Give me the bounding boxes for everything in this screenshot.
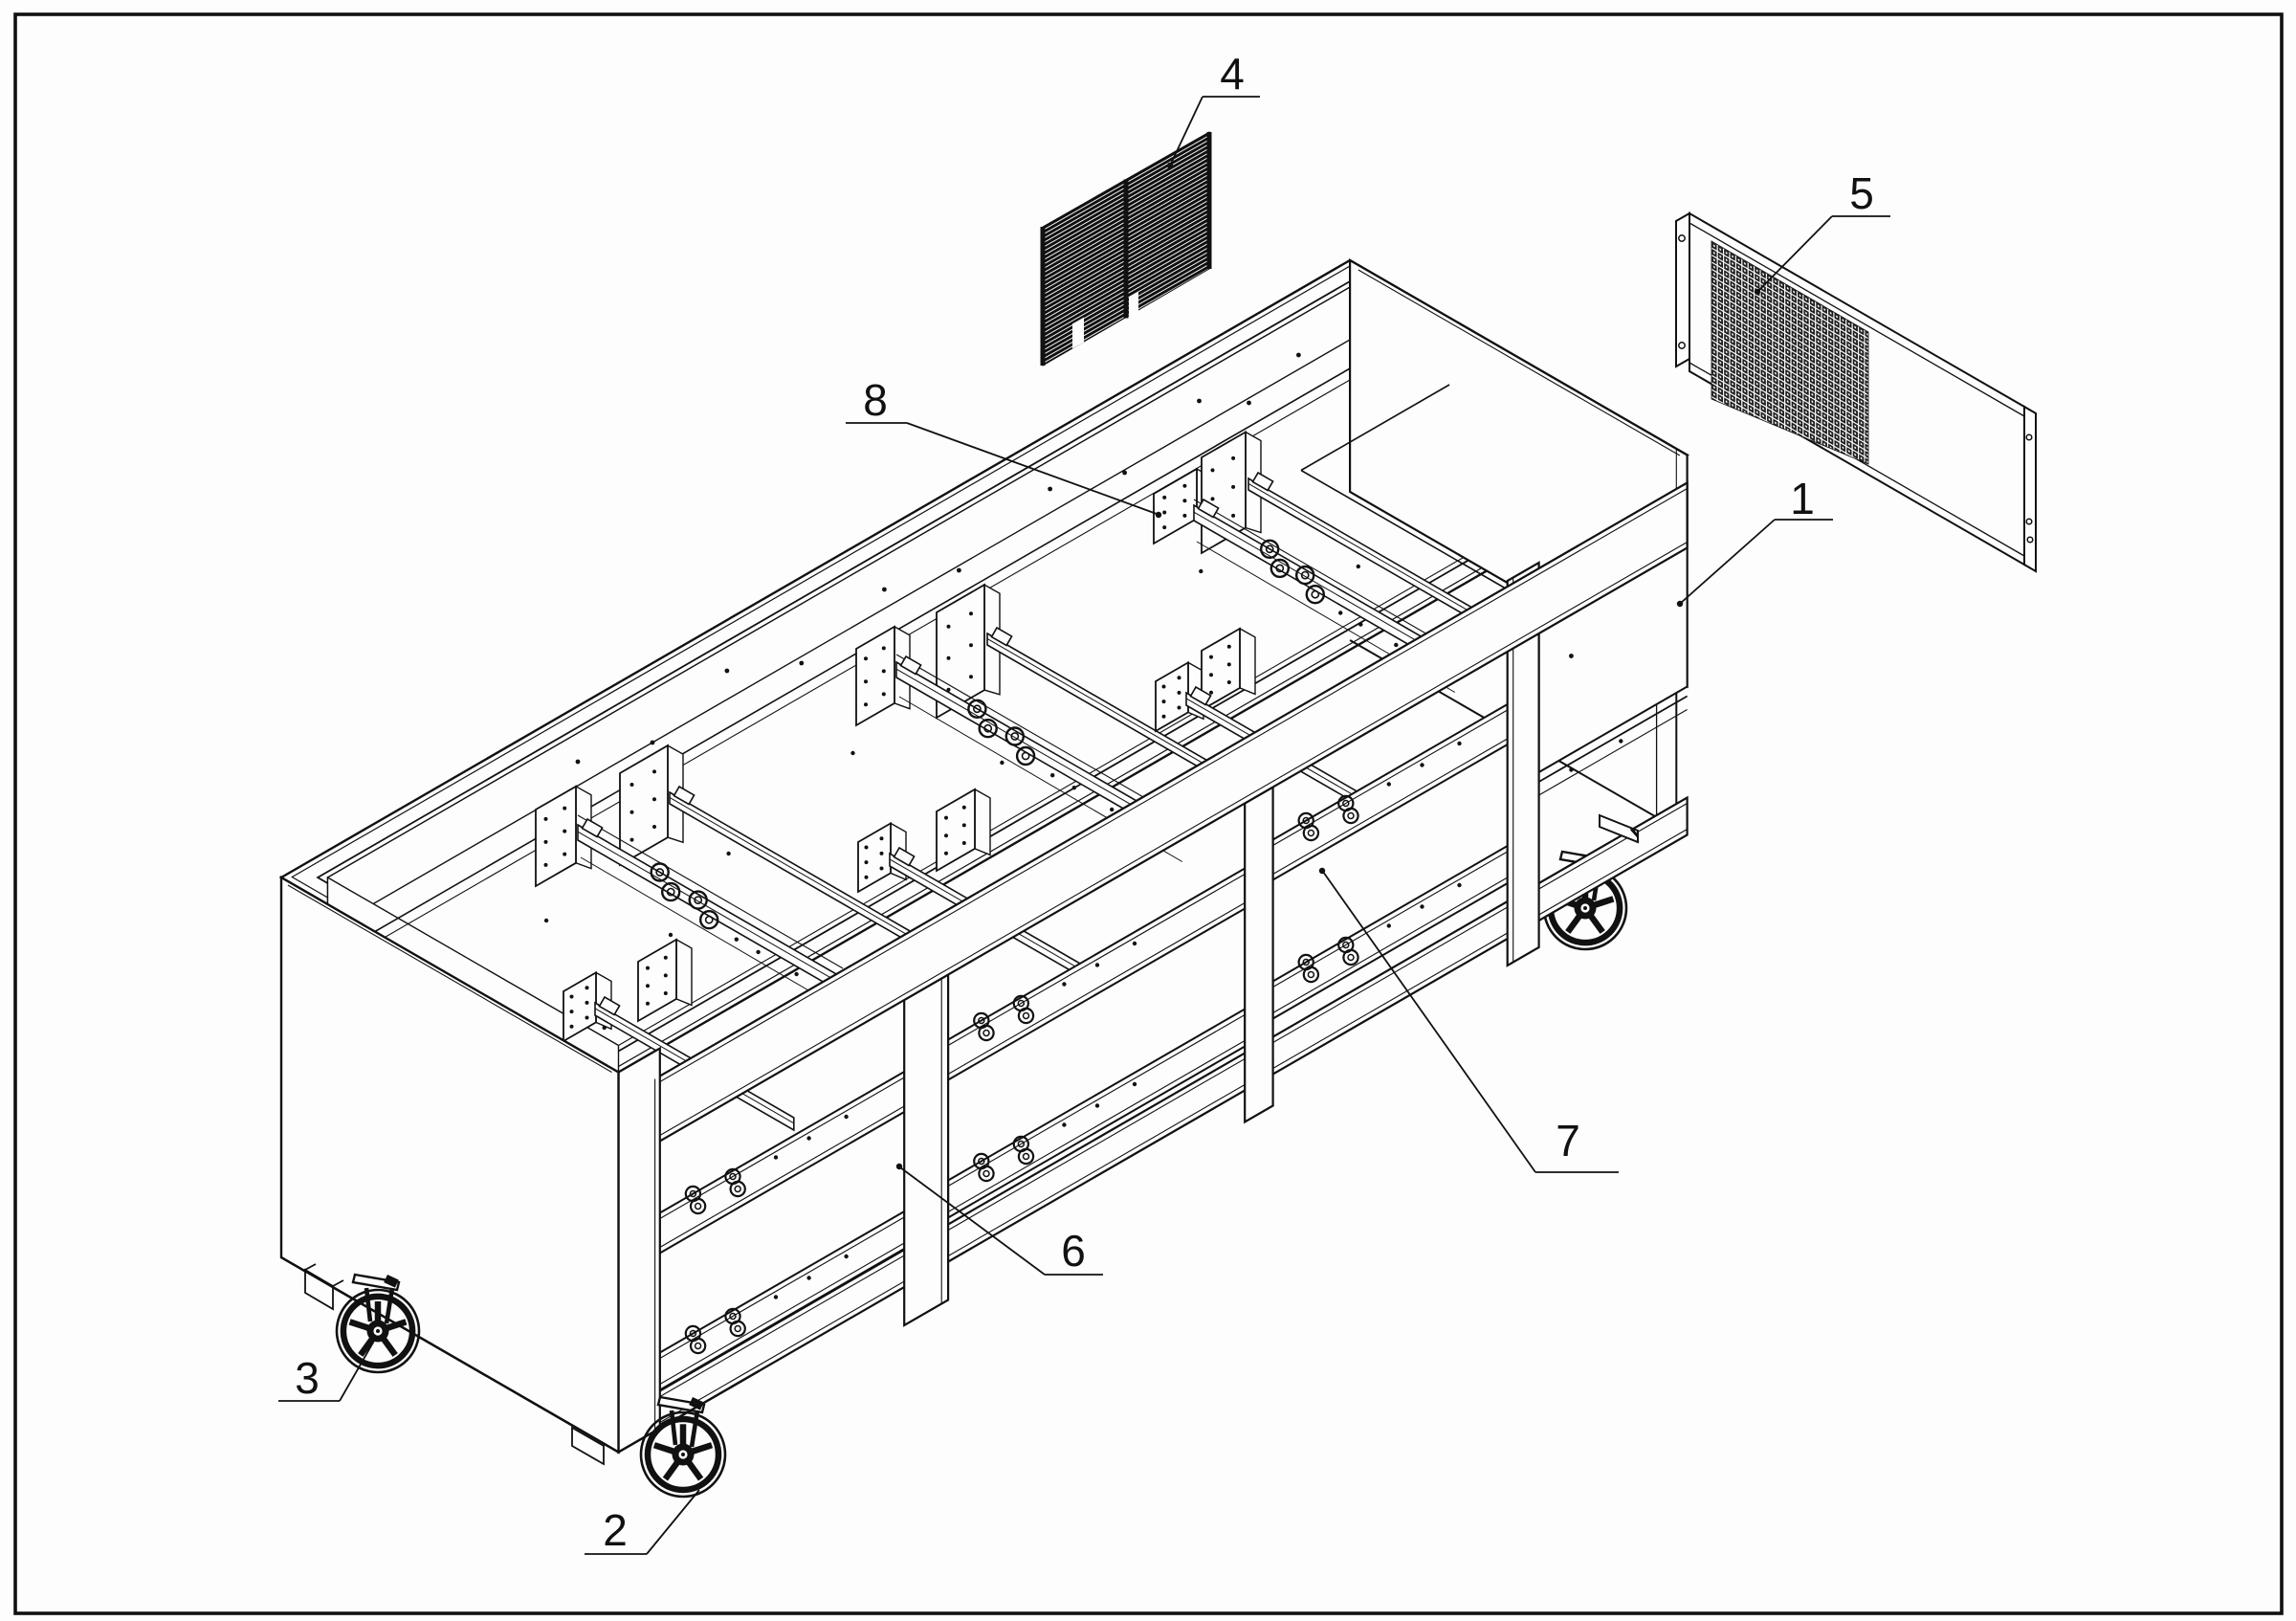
svg-text:3: 3 <box>295 1353 320 1403</box>
svg-text:4: 4 <box>1220 49 1245 99</box>
svg-text:8: 8 <box>863 375 888 425</box>
svg-text:6: 6 <box>1061 1226 1086 1276</box>
svg-text:1: 1 <box>1790 474 1815 523</box>
svg-text:5: 5 <box>1849 168 1874 218</box>
svg-text:2: 2 <box>603 1505 628 1555</box>
svg-text:7: 7 <box>1556 1116 1580 1166</box>
